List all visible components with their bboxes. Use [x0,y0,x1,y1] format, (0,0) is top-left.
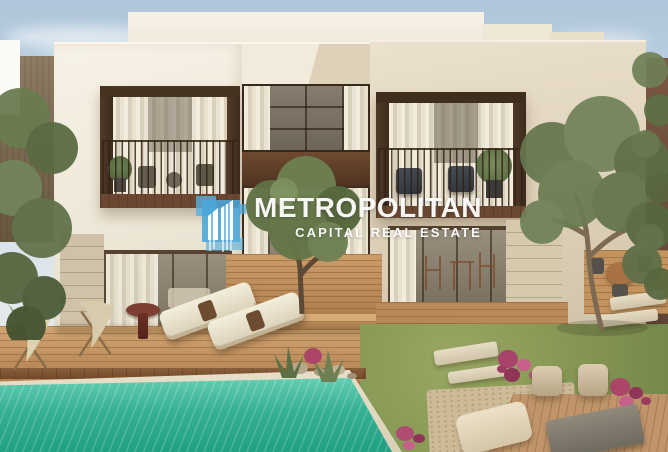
balcony-header [100,86,240,97]
pouf [578,364,608,396]
bridge-band [242,42,370,86]
vine-plants [624,48,668,328]
balcony-railing [102,140,238,198]
side-table-stem [138,313,148,339]
metropolitan-logo-icon [194,194,246,254]
upper-window [242,84,370,152]
pool-water [0,378,396,452]
pouf [532,366,562,396]
window-glass [270,86,344,150]
curtain [244,86,270,150]
flower-clump [396,426,414,441]
watermark: METROPOLITAN CAPITAL REAL ESTATE [194,194,482,254]
villa-rendering: METROPOLITAN CAPITAL REAL ESTATE [0,0,668,452]
flower-clump [498,350,518,368]
balcony-left [100,86,240,208]
left-garden-trees [0,80,96,340]
curtain [344,86,368,150]
towel [197,299,218,322]
brand-tagline: CAPITAL REAL ESTATE [254,225,482,240]
brand-name: METROPOLITAN [254,194,482,222]
flower-clump [610,378,630,396]
flower-clump [304,348,322,364]
balcony-header [376,92,526,103]
